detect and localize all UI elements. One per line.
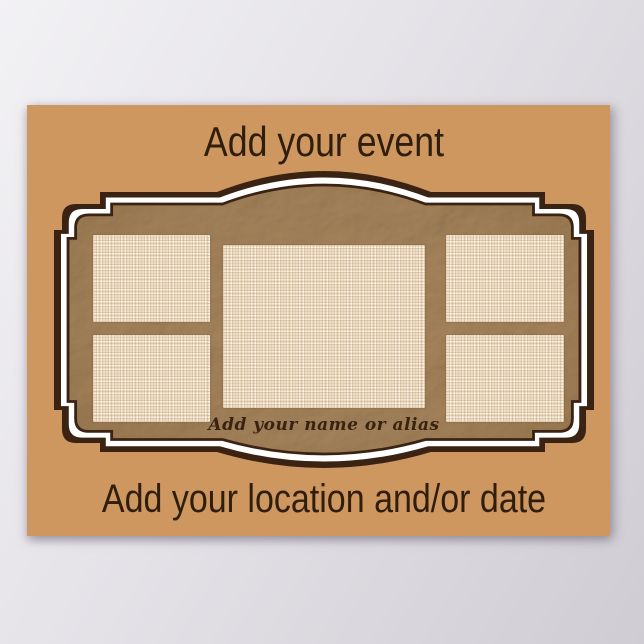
event-text-placeholder[interactable]: Add your event [95,121,554,163]
poster: Add your event [27,105,610,536]
page-background: Add your event [0,0,644,644]
location-text-placeholder[interactable]: Add your location and/or date [95,479,554,519]
photo-slot-left-top[interactable] [93,235,210,322]
poster-content: Add your event [54,105,594,536]
photo-slot-right-top[interactable] [446,235,564,322]
name-text-placeholder[interactable]: Add your name or alias [54,415,594,435]
photo-slot-right-bottom[interactable] [446,335,564,422]
photo-slot-center[interactable] [223,245,425,408]
photo-slot-left-bottom[interactable] [93,335,210,422]
